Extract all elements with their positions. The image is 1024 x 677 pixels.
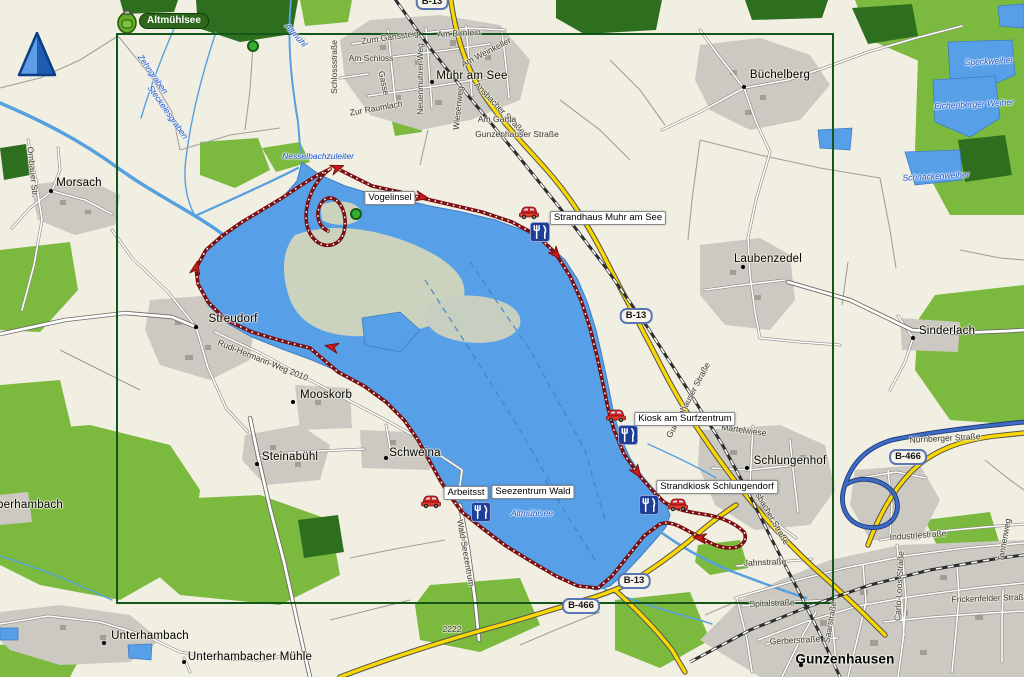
- town-dot-schweina: [384, 456, 388, 460]
- street-label-zum-gänssteig-0: Zum Gänssteig: [361, 28, 419, 46]
- street-label-wiesenweg-8: Wiesenweg: [451, 86, 466, 131]
- street-label-nürnberger-straße-18: Nürnberger Straße: [909, 431, 980, 445]
- town-label-muhr-am-see: Muhr am See: [436, 70, 507, 82]
- street-label-frickenfelder-straße-21: Frickenfelder Straße: [951, 592, 1024, 605]
- poi-label-strandkiosk-schlungendorf[interactable]: Strandkiosk Schlungendorf: [656, 480, 778, 494]
- street-label-ornbauer-str-12: Ornbauer Str.: [25, 146, 40, 198]
- town-dot-büchelberg: [742, 85, 746, 89]
- street-label-spitalstraße-24: Spitalstraße: [749, 597, 795, 609]
- street-label-industriestraße-19: Industriestraße: [889, 528, 946, 542]
- town-label-sinderlach: Sinderlach: [919, 325, 975, 337]
- town-dot-sinderlach: [911, 336, 915, 340]
- town-dot-gunzenhausen: [799, 663, 803, 667]
- street-label-gerberstraße-25: Gerberstraße: [769, 634, 820, 647]
- street-label-tannenweg-22: Tannenweg: [995, 518, 1012, 563]
- route-shield-b-466-3: B-466: [889, 449, 927, 465]
- route-shield-b-13-1: B-13: [620, 308, 653, 324]
- town-label-gunzenhausen: Gunzenhausen: [795, 652, 894, 667]
- town-label-büchelberg: Büchelberg: [750, 69, 810, 81]
- town-dot-mooskorb: [291, 400, 295, 404]
- car-icon[interactable]: [420, 493, 442, 509]
- street-label-carlo-loos-straße-20: Carlo-Loos-Straße: [892, 551, 906, 621]
- street-label-gasse-4: Gasse: [377, 70, 392, 96]
- restaurant-icon[interactable]: [530, 222, 550, 242]
- town-label-mooskorb: Mooskorb: [300, 389, 352, 401]
- town-dot-unterhambacher-mühle: [182, 660, 186, 664]
- poi-label-seezentrum-wald[interactable]: Seezentrum Wald: [491, 485, 574, 499]
- town-dot-schlungenhof: [745, 466, 749, 470]
- poi-label-strandhaus-muhr-am-see[interactable]: Strandhaus Muhr am See: [550, 211, 666, 225]
- town-label-morsach: Morsach: [56, 177, 102, 189]
- town-dot-streudorf: [194, 325, 198, 329]
- poi-label-arbeitsst[interactable]: Arbeitsst: [444, 486, 489, 500]
- street-label-am-gartla-10: Am Gartla: [478, 114, 516, 124]
- water-label-nesselbachzuleiter: Nesselbachzuleiter: [282, 151, 354, 161]
- town-dot-steinabühl: [255, 462, 259, 466]
- route-shield-b-13-2: B-13: [618, 573, 651, 589]
- town-label-schweina: Schweina: [389, 447, 440, 459]
- water-label-eichenberger-weiher: Eichenberger Weiher: [934, 97, 1014, 111]
- street-label-neuenmuhrer-weg-5: Neuenmuhrer Weg: [415, 43, 425, 115]
- water-label-schnackenweiher: Schnackenweiher: [902, 169, 970, 182]
- town-dot-laubenzedel: [741, 265, 745, 269]
- car-icon[interactable]: [605, 407, 627, 423]
- town-dot-muhr-am-see: [430, 80, 434, 84]
- town-dot-unterhambach: [102, 641, 106, 645]
- street-label-schlossstraße-6: Schlossstraße: [329, 40, 339, 94]
- street-label-ansbacher-straße-9: Ansbacher Straße: [473, 80, 528, 136]
- town-dot-morsach: [49, 189, 53, 193]
- position-triangle-icon: [17, 31, 57, 77]
- street-label-jahnstraße-23: Jahnstraße: [744, 556, 787, 567]
- waypoint-dot-0[interactable]: [247, 40, 259, 52]
- waypoint-dot-1[interactable]: [350, 208, 362, 220]
- backpack-icon: [116, 7, 138, 34]
- poi-label-vogelinsel[interactable]: Vogelinsel: [364, 191, 415, 205]
- town-label-streudorf: Streudorf: [208, 313, 257, 325]
- street-label-am-weinkeller-2: Am Weinkeller: [459, 35, 512, 69]
- town-label-schlungenhof: Schlungenhof: [754, 455, 827, 467]
- street-label-gunzenhäuser-straße-14: Gunzenhäuser Straße: [664, 361, 712, 440]
- car-icon[interactable]: [667, 496, 689, 512]
- street-label-gunzenhauser-straße-11: Gunzenhauser Straße: [475, 129, 559, 139]
- street-label-saarstraße-26: Saarstraße: [821, 600, 838, 643]
- street-label-am-schloss-3: Am Schloss: [349, 53, 394, 63]
- town-label-berhambach: berhambach: [0, 499, 63, 511]
- map-viewport[interactable]: Altmühlsee Muhr am SeeBüchelbergMorsachL…: [0, 0, 1024, 677]
- restaurant-icon[interactable]: [639, 495, 659, 515]
- route-shield-b-13-0: B-13: [416, 0, 449, 10]
- water-label-altmühlsee: Altmühlsee: [511, 508, 553, 518]
- town-label-steinabühl: Steinabühl: [262, 451, 318, 463]
- street-label-2222-27: 2222: [443, 624, 462, 634]
- waypoint-badge[interactable]: Altmühlsee: [116, 7, 209, 34]
- street-label-wald-seezentrum-17: Wald-Seezentrum: [455, 519, 477, 587]
- water-label-speckweiher: Speckweiher: [964, 55, 1013, 68]
- street-label-rudi-hermann-weg-2010-13: Rudi-Hermann-Weg 2010: [216, 337, 309, 382]
- town-label-unterhambacher-mühle: Unterhambacher Mühle: [188, 651, 312, 663]
- town-label-unterhambach: Unterhambach: [111, 630, 189, 642]
- waypoint-badge-label: Altmühlsee: [139, 13, 209, 29]
- restaurant-icon[interactable]: [618, 425, 638, 445]
- restaurant-icon[interactable]: [471, 502, 491, 522]
- street-label-zur-raumlach-7: Zur Raumlach: [349, 98, 403, 117]
- street-label-am-birnlein-1: Am Birnlein: [437, 27, 481, 39]
- water-label-altmühl: Altmühl: [283, 21, 309, 49]
- car-icon[interactable]: [518, 204, 540, 220]
- water-label-steckelesgraben: Steckelesgraben: [146, 83, 191, 141]
- route-shield-b-466-4: B-466: [562, 598, 600, 614]
- town-label-laubenzedel: Laubenzedel: [734, 253, 802, 265]
- poi-label-kiosk-am-surfzentrum[interactable]: Kiosk am Surfzentrum: [634, 412, 735, 426]
